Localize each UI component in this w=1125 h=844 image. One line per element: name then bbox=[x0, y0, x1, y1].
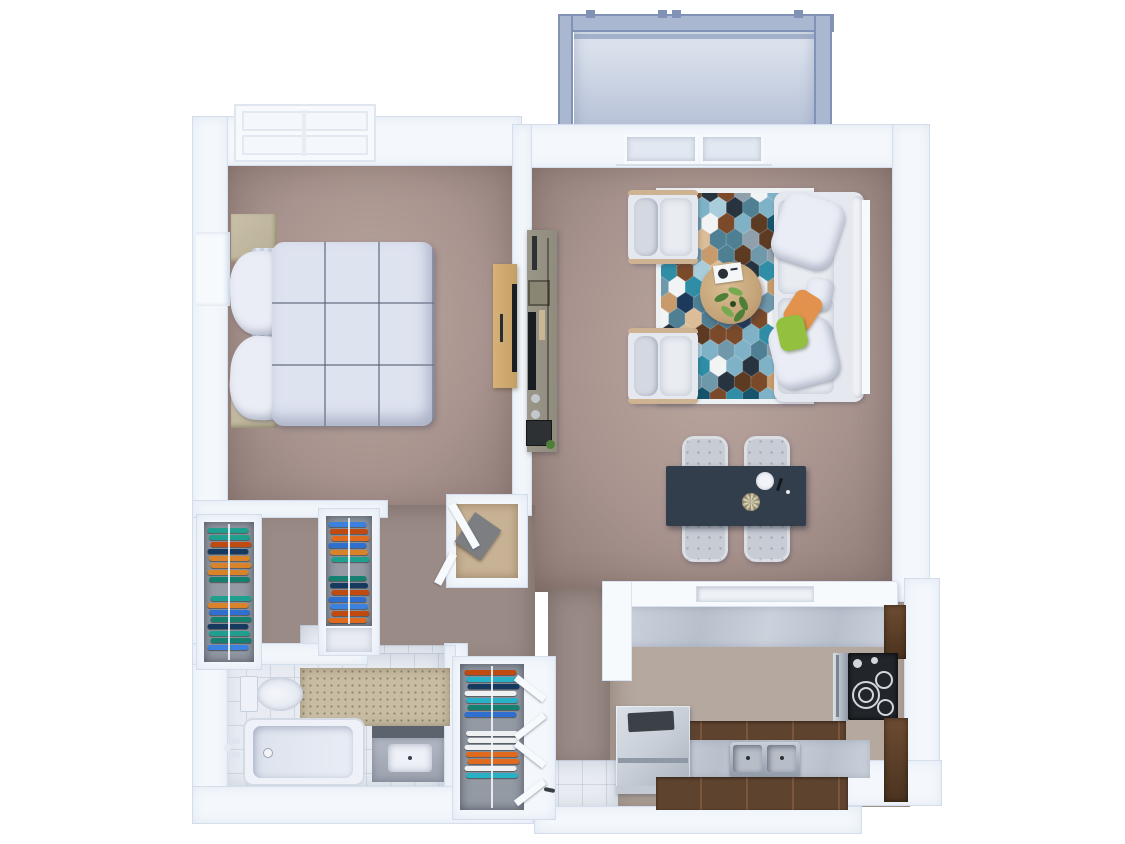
bar-end-cap bbox=[602, 581, 632, 681]
railing-post bbox=[794, 10, 803, 18]
magazine bbox=[713, 262, 743, 284]
hanging-garment bbox=[332, 557, 370, 562]
magazine-art bbox=[730, 268, 737, 271]
door-track bbox=[616, 164, 772, 166]
wall-bottom-right bbox=[534, 806, 862, 834]
middle-closet-floor bbox=[326, 628, 372, 652]
tv-on-dresser bbox=[512, 284, 517, 372]
magazine-art bbox=[717, 268, 728, 279]
console-knob bbox=[531, 410, 540, 419]
middle-closet-rack bbox=[326, 516, 372, 626]
stove-burner bbox=[877, 699, 894, 716]
armchair-wood-trim bbox=[628, 259, 698, 264]
balcony-rail-inner bbox=[574, 34, 814, 39]
stove-burner bbox=[871, 657, 878, 664]
sink-drain bbox=[780, 756, 784, 760]
soundbar bbox=[532, 236, 537, 270]
bedroom-window bbox=[234, 104, 376, 162]
wall-left bbox=[192, 116, 228, 822]
armchair-wood-trim bbox=[628, 399, 698, 404]
hanging-garment bbox=[467, 684, 519, 689]
potted-plant bbox=[712, 284, 756, 326]
railing-post bbox=[658, 10, 667, 18]
lower-cabinet bbox=[884, 718, 908, 802]
hanging-garment bbox=[467, 738, 519, 743]
plant-leaf bbox=[713, 291, 730, 304]
small-plant bbox=[546, 440, 555, 449]
hanging-garment bbox=[210, 617, 251, 622]
armchair-back-cushion bbox=[634, 336, 658, 396]
balcony-deck bbox=[574, 30, 814, 134]
oven bbox=[833, 653, 848, 721]
entry-closet-rack bbox=[460, 664, 524, 810]
armchair-wood-trim bbox=[628, 328, 698, 333]
lower-counter-front bbox=[656, 777, 848, 810]
balcony-railing-top bbox=[558, 14, 834, 32]
double-sink bbox=[730, 742, 800, 778]
fridge-handle bbox=[618, 758, 688, 763]
tub-faucet bbox=[228, 752, 240, 758]
balcony-railing-left bbox=[558, 14, 573, 136]
tub-faucet bbox=[228, 738, 240, 744]
armchair-seat bbox=[660, 336, 692, 396]
wall-right bbox=[892, 124, 930, 602]
toilet-tank bbox=[240, 676, 258, 712]
window-mullion bbox=[302, 110, 306, 156]
plant-leaf bbox=[732, 308, 747, 324]
hanging-garment bbox=[210, 563, 251, 568]
armchair-bottom bbox=[628, 328, 698, 404]
hanging-garment bbox=[332, 536, 370, 541]
sofa-back-board bbox=[862, 200, 870, 394]
balcony bbox=[558, 10, 834, 136]
closet-rod bbox=[228, 524, 230, 660]
console-shelf-edge bbox=[547, 238, 549, 442]
upper-cabinet bbox=[884, 605, 906, 659]
railing-post bbox=[586, 10, 595, 18]
balcony-railing-right bbox=[814, 14, 832, 136]
closet-rod bbox=[491, 666, 493, 808]
bathtub bbox=[243, 718, 365, 786]
left-closet-rack bbox=[204, 522, 254, 662]
armchair-top bbox=[628, 190, 698, 264]
hanging-garment bbox=[332, 611, 370, 616]
stove-burner bbox=[853, 659, 862, 668]
woven-bowl bbox=[742, 493, 760, 511]
oven-handle bbox=[836, 655, 839, 717]
cooktop bbox=[848, 653, 898, 720]
remote bbox=[539, 310, 545, 340]
tub-spout bbox=[224, 744, 231, 751]
hanging-garment bbox=[210, 596, 251, 601]
dining-table bbox=[666, 466, 806, 526]
tv-screen bbox=[528, 312, 536, 390]
plate bbox=[756, 472, 774, 490]
dresser-handle bbox=[500, 314, 503, 342]
tub-drain bbox=[263, 748, 273, 758]
armchair-seat bbox=[660, 198, 692, 256]
sliding-glass-door-panel bbox=[624, 134, 698, 164]
bar-serving-tray bbox=[696, 586, 814, 602]
hanging-garment bbox=[467, 759, 519, 764]
fridge-recess bbox=[628, 711, 675, 732]
closet-rod bbox=[348, 518, 350, 624]
sliding-glass-door-panel bbox=[700, 134, 764, 164]
hanging-garment bbox=[332, 590, 370, 595]
stove-burner bbox=[858, 687, 874, 703]
console-knob bbox=[531, 394, 540, 403]
bar-counter-face bbox=[622, 607, 888, 647]
media-console bbox=[527, 230, 557, 452]
sink-drain bbox=[746, 756, 750, 760]
armchair-wood-trim bbox=[628, 190, 698, 195]
hanging-garment bbox=[210, 542, 251, 547]
toilet-bowl bbox=[257, 677, 303, 711]
railing-post bbox=[672, 10, 681, 18]
hanging-garment bbox=[467, 705, 519, 710]
sink-drain bbox=[408, 756, 412, 760]
utensil-dot bbox=[786, 490, 790, 494]
bedroom-side-window bbox=[196, 232, 230, 306]
hanging-garment bbox=[210, 638, 251, 643]
floor-plan bbox=[0, 0, 1125, 844]
bathroom-mirror bbox=[372, 726, 444, 738]
bed-duvet bbox=[272, 242, 434, 426]
plant-center bbox=[730, 301, 736, 307]
armchair-back-cushion bbox=[634, 198, 658, 256]
